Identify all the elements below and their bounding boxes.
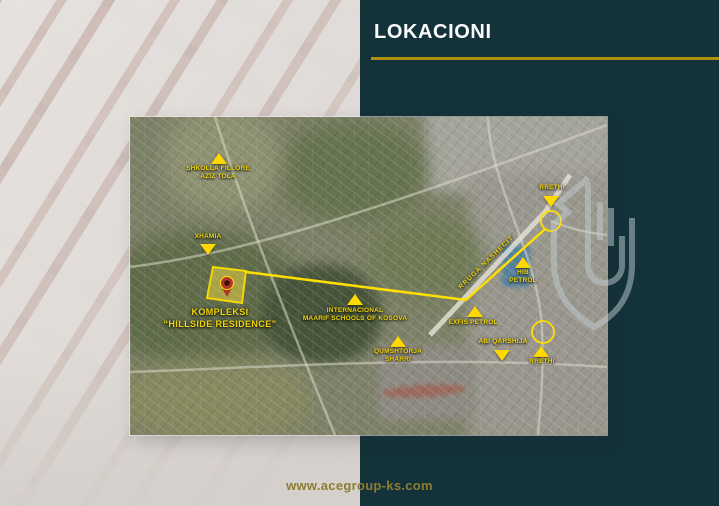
- poi-dairy-line2: SHARRI: [374, 356, 422, 364]
- marker-triangle-up-icon: [347, 294, 363, 305]
- poi-abi-qarshija: ABI QARSHIJA: [479, 338, 528, 346]
- marker-triangle-up-icon: [211, 153, 227, 164]
- marker-triangle-down-icon: [494, 350, 510, 361]
- marker-triangle-up-icon: [467, 306, 483, 317]
- title-underline: [371, 57, 719, 60]
- website-link[interactable]: www.acegroup-ks.com: [0, 478, 719, 493]
- route-line: [246, 229, 545, 300]
- shield-logo-icon: [554, 178, 632, 327]
- marker-triangle-up-icon: [533, 346, 549, 357]
- poi-exfis-petrol: EXFIS PETROL: [448, 319, 497, 327]
- poi-complex-line1: KOMPLEKSI: [163, 307, 276, 319]
- acegroup-logo-watermark: [532, 174, 652, 334]
- poi-roundabout-south: RRETHI: [529, 358, 554, 366]
- marker-triangle-down-icon: [200, 244, 216, 255]
- poi-maarif-school: INTERNACIONAL MAARIF SCHOOLS OF KOSOVA: [303, 307, 407, 324]
- poi-maarif-line2: MAARIF SCHOOLS OF KOSOVA: [303, 315, 407, 323]
- slide: LOKACIONI: [0, 0, 719, 506]
- page-title: LOKACIONI: [374, 21, 492, 44]
- poi-school-line2: AZIZ TOLA: [186, 173, 250, 181]
- marker-triangle-up-icon: [390, 336, 406, 347]
- marker-triangle-up-icon: [515, 257, 531, 268]
- poi-complex-line2: “HILLSIDE RESIDENCE”: [163, 319, 276, 331]
- poi-complex: KOMPLEKSI “HILLSIDE RESIDENCE”: [163, 307, 276, 330]
- poi-mosque: XHAMIA: [195, 233, 222, 241]
- poi-dairy: QUMSHTORJA SHARRI: [374, 348, 422, 365]
- poi-school: SHKOLLA FILLORE AZIZ TOLA: [186, 165, 250, 182]
